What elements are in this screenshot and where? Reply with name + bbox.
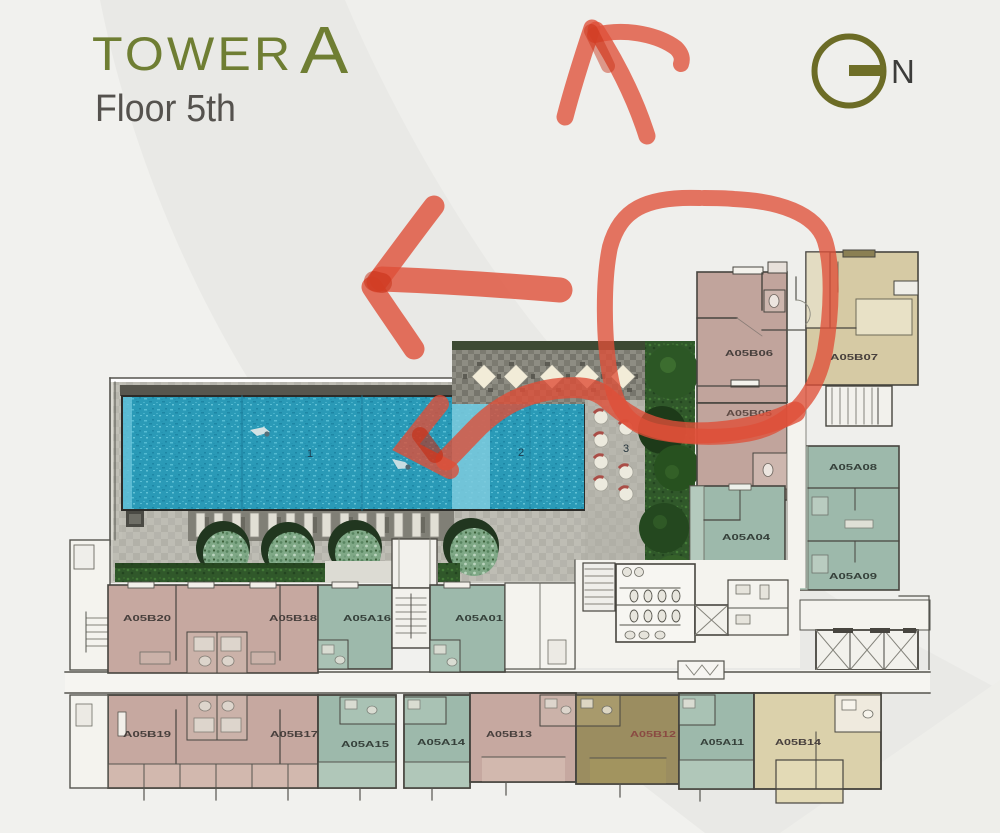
svg-text:A05A04: A05A04 [722,532,770,542]
svg-text:1: 1 [307,448,313,460]
svg-text:A05A16: A05A16 [343,613,391,623]
svg-text:A05B18: A05B18 [269,613,317,623]
svg-text:A05B14: A05B14 [775,737,821,747]
svg-text:A05A14: A05A14 [417,737,465,747]
svg-text:A05B19: A05B19 [123,729,171,739]
svg-text:A05B17: A05B17 [270,729,318,739]
svg-text:A05B06: A05B06 [725,348,773,358]
svg-text:A05A08: A05A08 [829,462,877,472]
svg-text:TOWER: TOWER [92,28,293,80]
svg-text:A05A01: A05A01 [455,613,503,623]
svg-text:A: A [300,12,349,87]
svg-text:A05B13: A05B13 [486,729,532,739]
svg-text:2: 2 [518,447,524,459]
svg-text:A05A11: A05A11 [700,737,744,747]
svg-text:Floor 5th: Floor 5th [95,87,236,129]
svg-text:3: 3 [623,443,629,455]
svg-text:A05A09: A05A09 [829,571,877,581]
svg-text:A05B07: A05B07 [830,352,878,362]
svg-text:A05B12: A05B12 [630,729,676,739]
svg-text:A05B20: A05B20 [123,613,171,623]
svg-text:N: N [891,53,915,90]
svg-text:A05A15: A05A15 [341,739,389,749]
